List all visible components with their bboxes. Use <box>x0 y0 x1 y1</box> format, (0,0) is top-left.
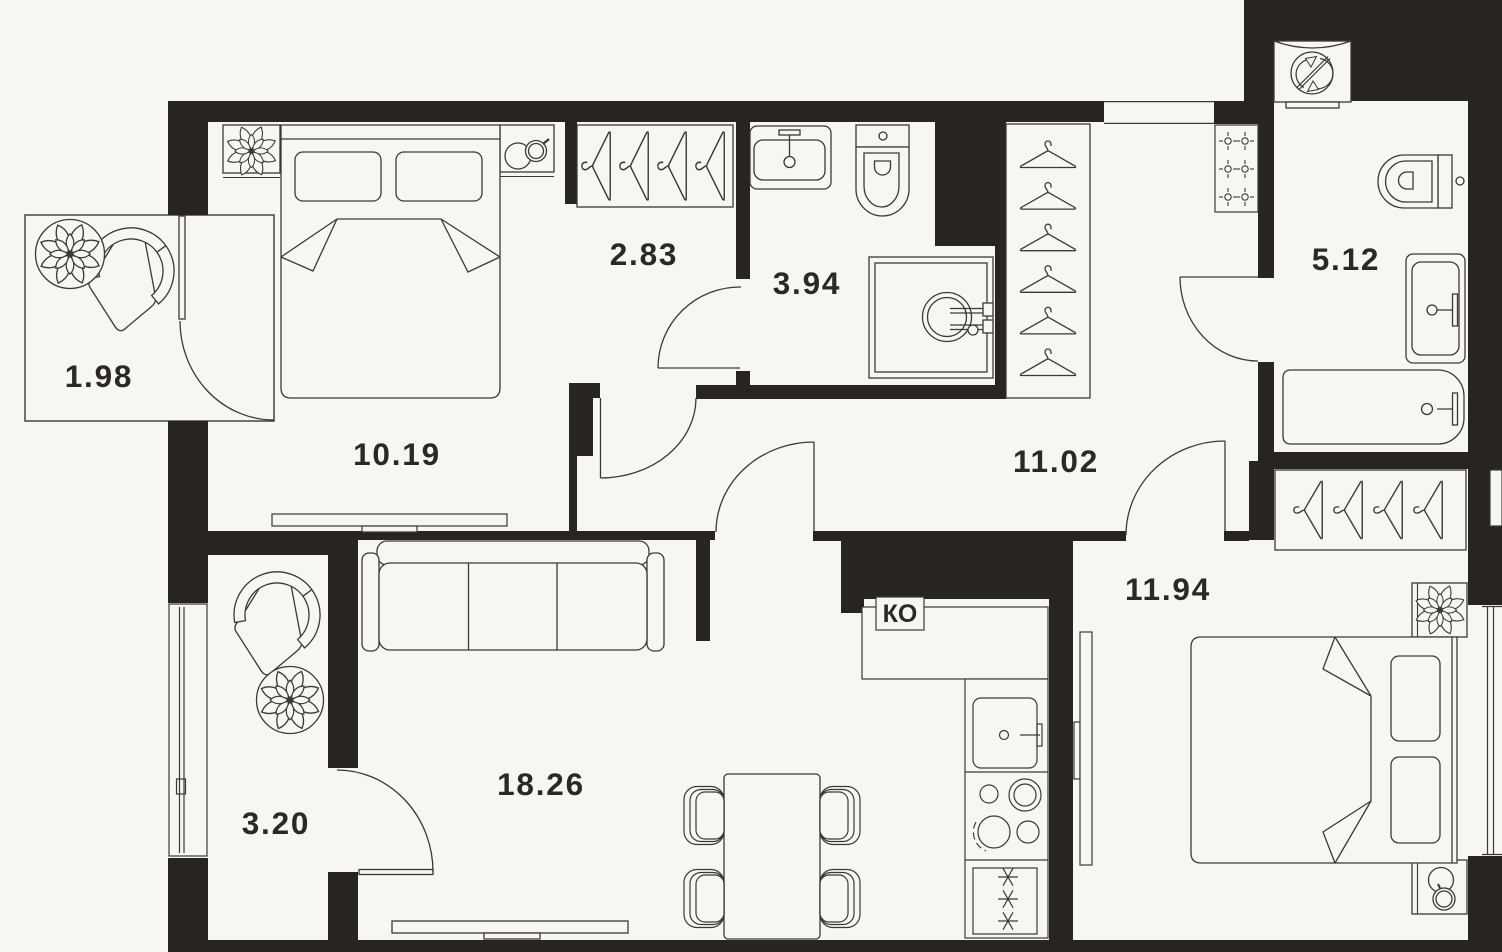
svg-text:11.02: 11.02 <box>1013 443 1099 479</box>
svg-text:1.98: 1.98 <box>65 358 134 394</box>
svg-text:18.26: 18.26 <box>497 766 585 802</box>
svg-text:10.19: 10.19 <box>353 436 441 472</box>
svg-text:3.94: 3.94 <box>773 265 842 301</box>
svg-text:5.12: 5.12 <box>1312 241 1381 277</box>
svg-text:11.94: 11.94 <box>1125 571 1211 607</box>
svg-text:2.83: 2.83 <box>610 236 679 272</box>
svg-text:КО: КО <box>883 600 918 628</box>
svg-text:3.20: 3.20 <box>242 805 311 841</box>
